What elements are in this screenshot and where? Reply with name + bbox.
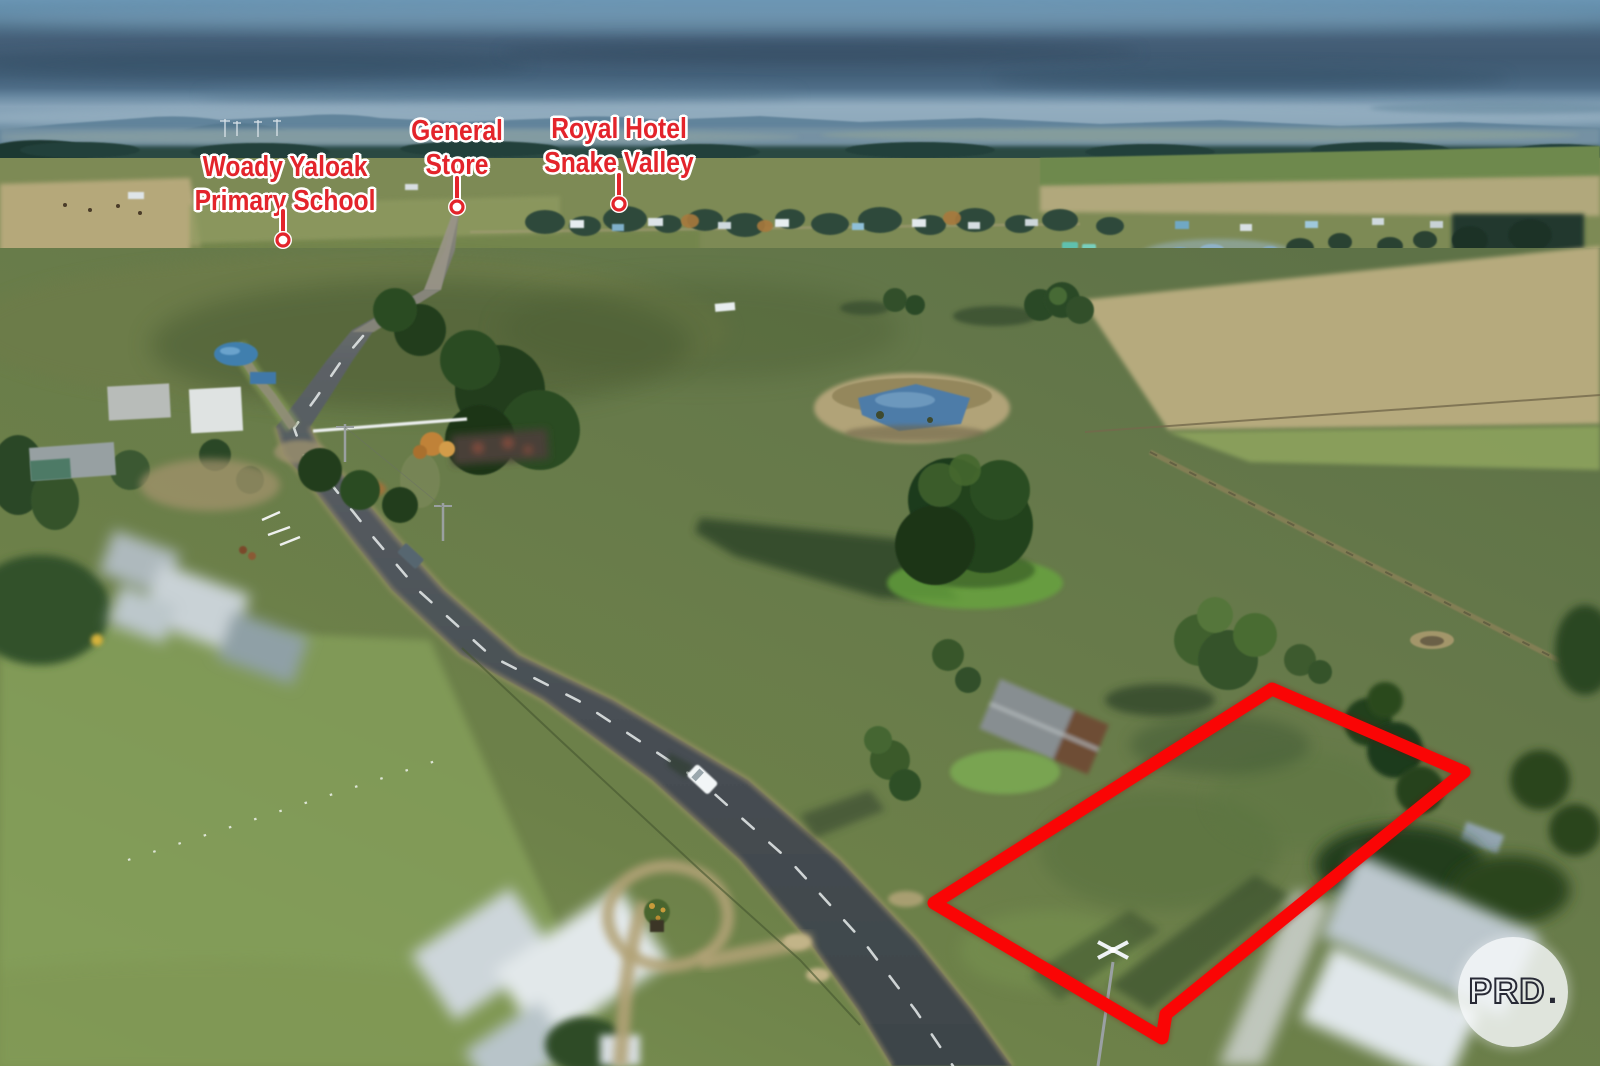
prd-logo: PRD . [1458,937,1568,1047]
aerial-photo: Woady Yaloak Primary School General Stor… [0,0,1600,1066]
location-pin-icon [444,173,470,217]
prd-logo-dot: . [1548,972,1558,1012]
location-pin-icon [606,170,632,214]
farm-dam [814,373,1010,443]
label-general-store: General Store [411,114,503,182]
label-line: Royal Hotel [544,112,693,146]
label-line: Woady Yaloak [195,150,376,184]
location-pin-icon [270,206,296,250]
label-line: General [411,114,503,148]
prd-logo-letters: PRD [1469,972,1546,1012]
